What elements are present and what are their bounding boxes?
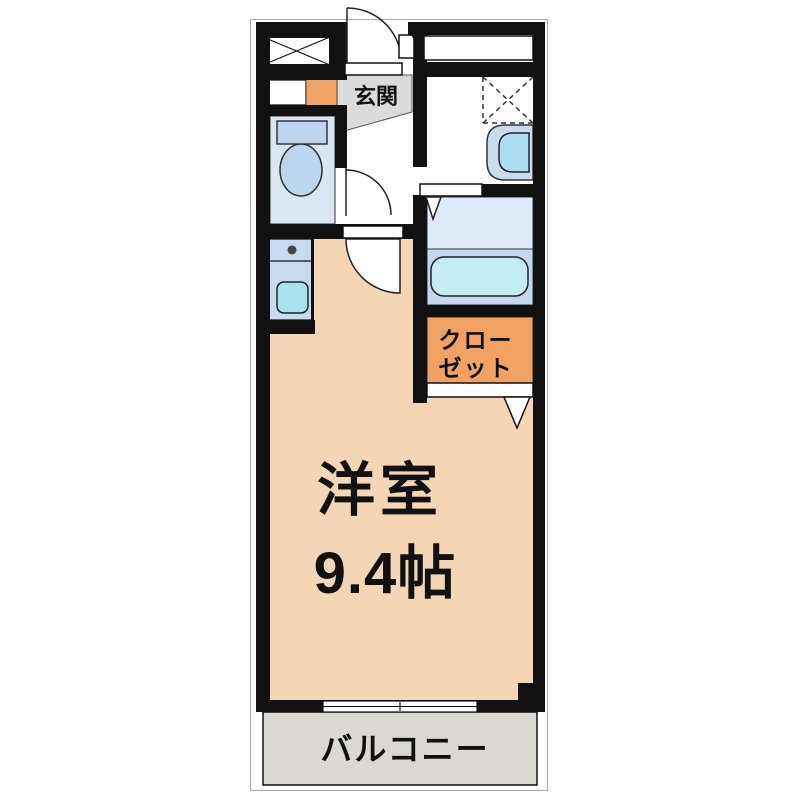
toilet-door-icon xyxy=(346,168,391,216)
entry-step xyxy=(306,78,337,106)
closet-label-line2: ゼット xyxy=(439,355,514,381)
stove-burner-icon xyxy=(288,246,297,255)
wall-bath-bottom xyxy=(413,305,533,317)
wall-vertical-lower xyxy=(413,195,427,397)
washing-machine-space-icon xyxy=(483,77,533,123)
floorplan-canvas: 玄関 クロー ゼット 洋室 9.4帖 バルコニー xyxy=(0,0,800,800)
shoe-cabinet xyxy=(264,80,306,105)
wall-toilet-right xyxy=(335,116,347,168)
room-size-label: 9.4帖 xyxy=(314,541,457,606)
wall-storage-bottom xyxy=(256,65,347,80)
genkan-label: 玄関 xyxy=(354,84,398,109)
entrance-door-icon xyxy=(345,8,424,75)
wall-right xyxy=(533,22,545,712)
floorplan-drawing: 玄関 クロー ゼット 洋室 9.4帖 バルコニー xyxy=(0,0,800,800)
wall-corner-notch xyxy=(518,683,545,712)
storage-box-icon xyxy=(263,37,330,65)
balcony-label: バルコニー xyxy=(320,731,489,767)
closet-label-line1: クロー xyxy=(439,327,514,353)
wall-closet-jamb xyxy=(413,383,427,403)
wall-shoecab-bottom xyxy=(256,105,347,116)
entrance-threshold xyxy=(345,63,402,75)
kitchen-sink-icon xyxy=(277,282,308,313)
bathtub-icon xyxy=(431,257,528,296)
wall-washroom-top xyxy=(427,62,533,77)
bathroom-floor-upper xyxy=(427,197,533,249)
wall-bath-top xyxy=(482,184,533,197)
wall-kitchen-bottom xyxy=(256,320,315,334)
washbasin-icon xyxy=(487,125,533,180)
room-name-label: 洋室 xyxy=(317,458,443,523)
wall-top-right xyxy=(408,22,545,35)
kitchen-unit xyxy=(268,239,313,320)
entrance-door-frame xyxy=(399,35,414,58)
wall-left xyxy=(256,22,270,712)
washroom-window-icon xyxy=(424,36,533,60)
balcony-window-icon xyxy=(323,701,477,712)
wall-kitchen-edge xyxy=(311,239,314,320)
